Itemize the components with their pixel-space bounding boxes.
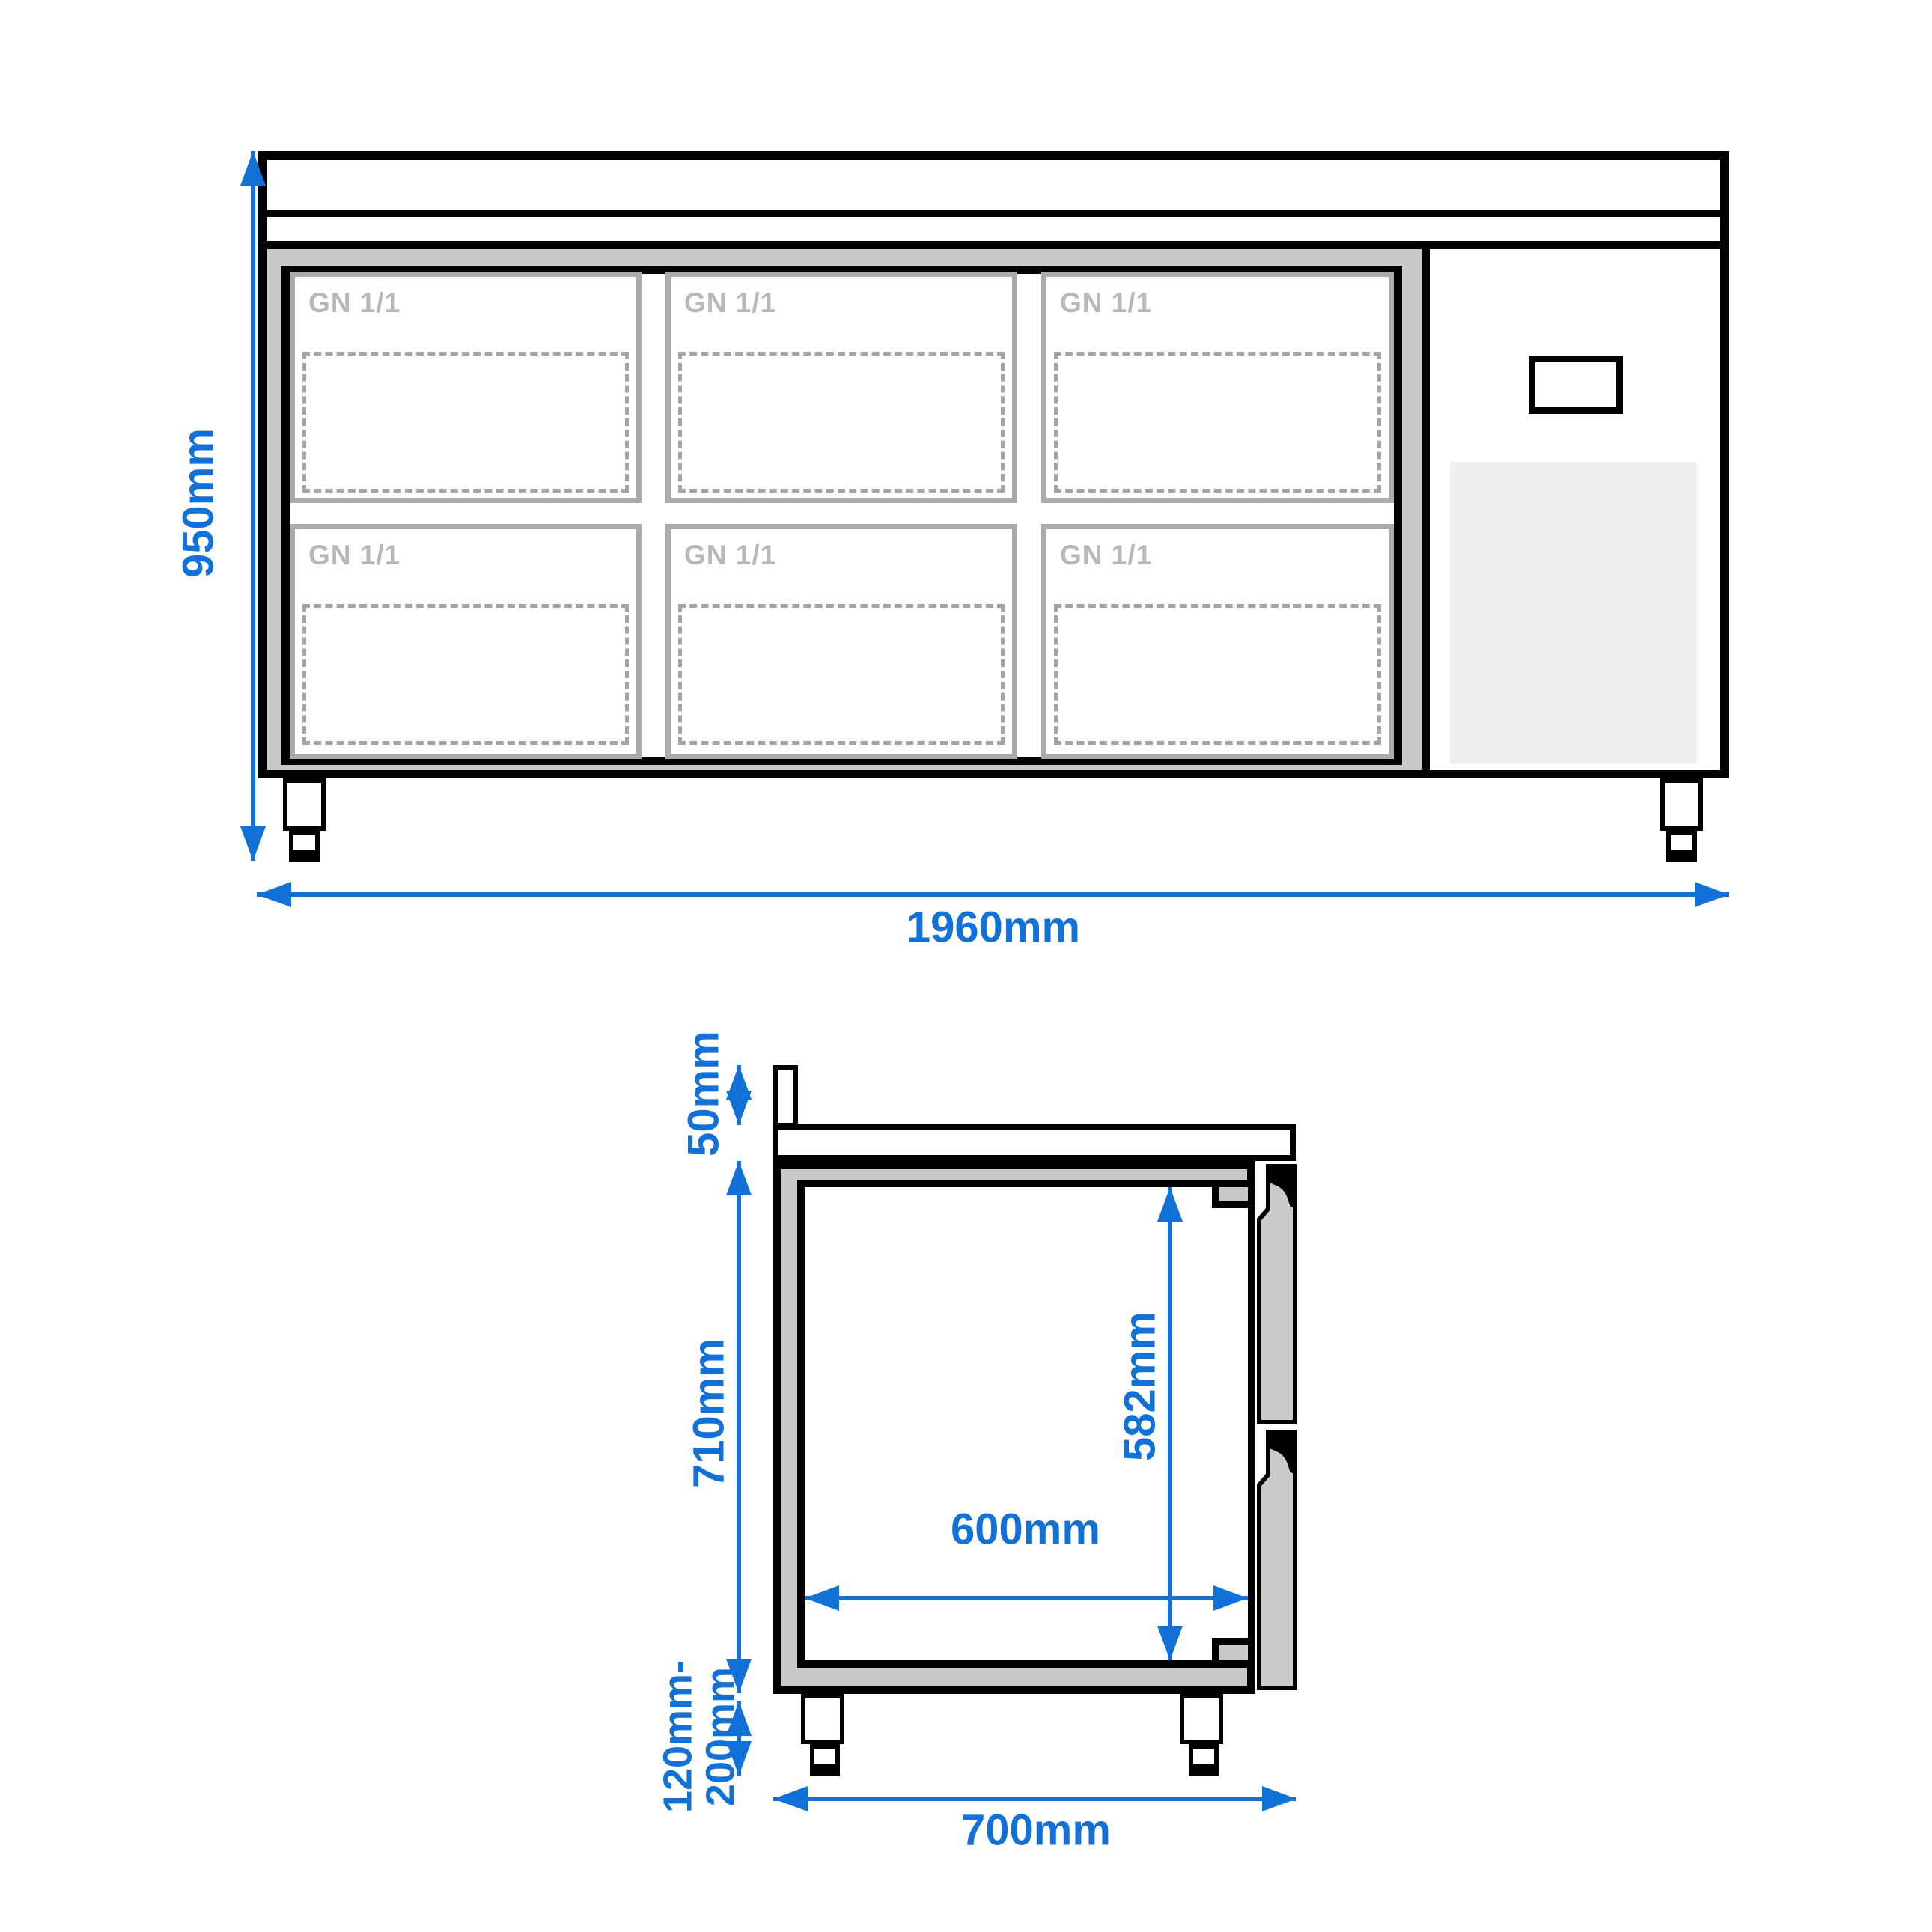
height-dimension-line xyxy=(251,151,255,861)
worktop-line-upper xyxy=(258,210,1729,217)
leg-foot xyxy=(1189,1744,1219,1768)
leg-pad xyxy=(1666,853,1697,862)
dimension-drawing: GN 1/1 GN 1/1 GN 1/1 GN 1/1 GN 1/1 GN xyxy=(0,0,1932,1932)
interior-height-dimension-line xyxy=(1168,1187,1172,1660)
gn-pan-outline xyxy=(678,604,1005,745)
leg-height-line1: 120mm- xyxy=(655,1660,700,1813)
gn-size-label: GN 1/1 xyxy=(295,277,636,319)
drawer-front-upper xyxy=(1256,1164,1298,1424)
arrowhead-down xyxy=(1157,1626,1183,1660)
control-display xyxy=(1529,356,1623,414)
total-depth-dimension-label: 700mm xyxy=(961,1808,1111,1854)
door-cell: GN 1/1 xyxy=(1041,272,1394,503)
leg-foot xyxy=(810,1744,840,1768)
total-depth-dimension-line xyxy=(773,1797,1296,1801)
width-dimension-line xyxy=(257,892,1729,897)
interior-depth-dimension-label: 600mm xyxy=(951,1508,1100,1553)
arrowhead-up xyxy=(1157,1187,1183,1222)
drawer-front-lower xyxy=(1256,1430,1298,1690)
gn-pan-outline xyxy=(302,604,629,745)
leg xyxy=(1660,778,1703,831)
interior-depth-dimension-line xyxy=(805,1596,1248,1600)
door-cell: GN 1/1 xyxy=(665,524,1017,759)
door-area: GN 1/1 GN 1/1 GN 1/1 GN 1/1 GN 1/1 GN xyxy=(281,266,1402,765)
machine-compartment-divider xyxy=(1422,249,1430,770)
arrowhead-up xyxy=(240,151,266,186)
gn-size-label: GN 1/1 xyxy=(671,277,1012,319)
door-cell: GN 1/1 xyxy=(1041,524,1394,759)
arrowhead-left xyxy=(257,882,291,907)
door-cell: GN 1/1 xyxy=(290,272,642,503)
body-height-dimension-line xyxy=(737,1161,741,1693)
ventilation-panel xyxy=(1450,462,1697,764)
gn-pan-outline xyxy=(1054,352,1381,493)
upstand-dimension-label: 50mm xyxy=(682,1031,728,1157)
arrowhead-up xyxy=(726,1161,752,1195)
arrowhead-right xyxy=(1695,882,1729,907)
leg xyxy=(1180,1694,1223,1744)
interior-cavity xyxy=(797,1180,1255,1668)
gn-pan-outline xyxy=(678,352,1005,493)
leg-height-line2: 200mm xyxy=(698,1667,743,1806)
worktop xyxy=(773,1124,1296,1161)
gn-size-label: GN 1/1 xyxy=(1046,529,1389,571)
interior-step-top xyxy=(1212,1187,1248,1208)
gn-pan-outline xyxy=(1054,604,1381,745)
arrowhead-right xyxy=(1262,1786,1296,1811)
gn-size-label: GN 1/1 xyxy=(671,529,1012,571)
gn-size-label: GN 1/1 xyxy=(295,529,636,571)
gn-pan-outline xyxy=(302,352,629,493)
leg xyxy=(801,1694,844,1744)
gn-size-label: GN 1/1 xyxy=(1046,277,1389,319)
height-dimension-label: 950mm xyxy=(177,428,222,578)
leg-foot xyxy=(1666,831,1697,855)
leg-foot xyxy=(289,831,320,855)
leg-pad xyxy=(289,853,320,862)
worktop-line-lower xyxy=(258,241,1729,249)
leg-pad xyxy=(810,1768,840,1776)
arrowhead-right xyxy=(1213,1585,1248,1611)
door-cell: GN 1/1 xyxy=(290,524,642,759)
arrowhead-left xyxy=(805,1585,839,1611)
arrowhead-down xyxy=(726,1091,752,1125)
width-dimension-label: 1960mm xyxy=(906,906,1080,951)
arrowhead-down xyxy=(240,826,266,861)
body-height-dimension-label: 710mm xyxy=(687,1338,733,1488)
upstand xyxy=(773,1065,798,1128)
leg xyxy=(283,778,326,831)
interior-height-dimension-label: 582mm xyxy=(1118,1311,1164,1461)
leg-height-dimension-label: 120mm- 200mm xyxy=(656,1660,741,1813)
interior-step-bottom xyxy=(1212,1638,1248,1660)
leg-pad xyxy=(1189,1768,1219,1776)
arrowhead-left xyxy=(773,1786,808,1811)
door-cell: GN 1/1 xyxy=(665,272,1017,503)
